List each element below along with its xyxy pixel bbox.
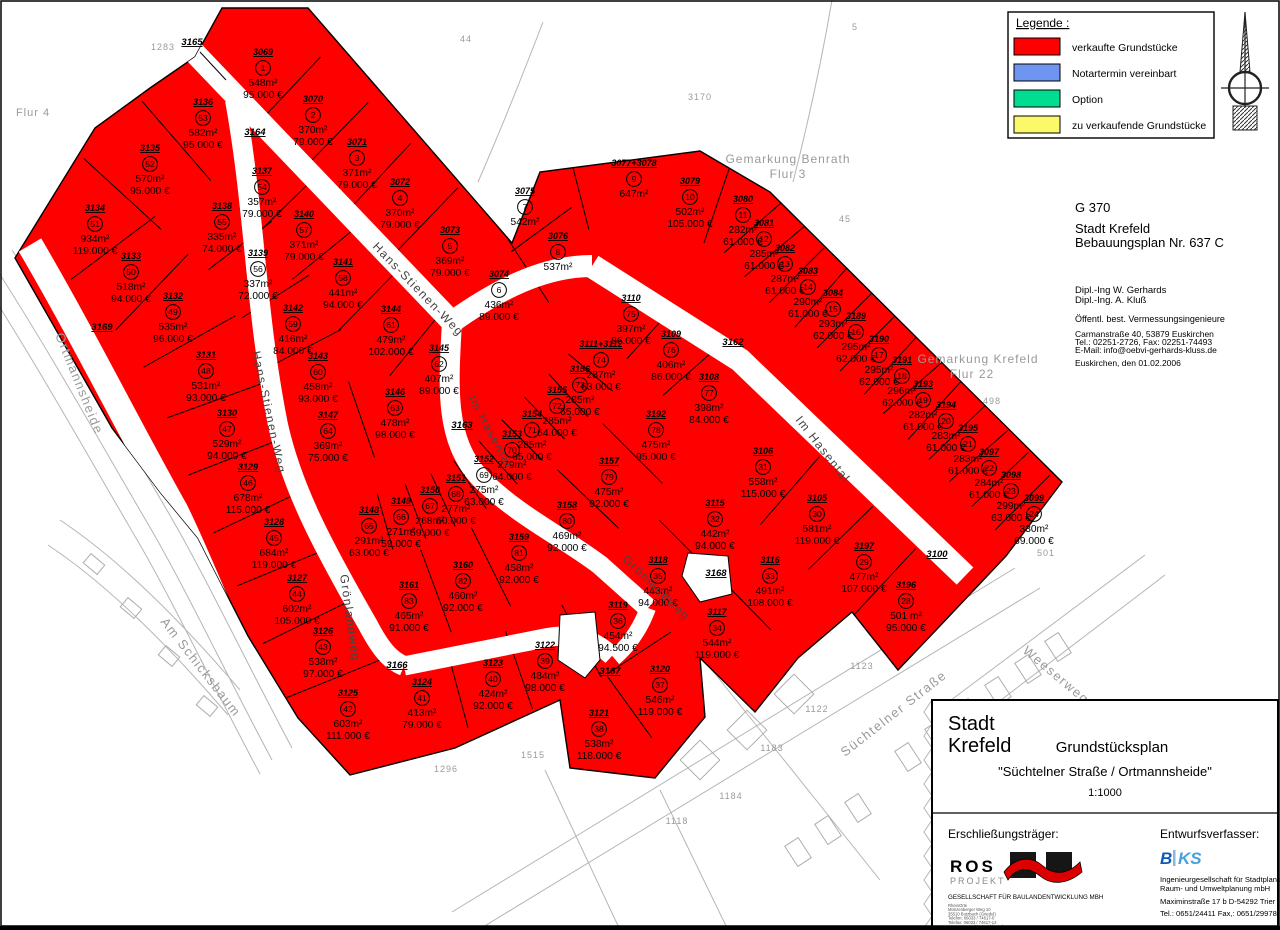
parcel-flurstueck: 3137 <box>252 166 273 176</box>
parcel-number: 18 <box>897 371 907 381</box>
parcel-area: 275m² <box>470 485 499 496</box>
parcel-price: 91.000 € <box>389 623 429 634</box>
parcel-number: 75 <box>626 309 636 319</box>
parcel-area: 398m² <box>695 403 724 414</box>
parcel-flurstueck: 3189 <box>846 311 866 321</box>
parcel-area: 283m² <box>932 431 961 442</box>
ros-logo-text: ROS <box>950 857 996 876</box>
parcel-price: 93.000 € <box>186 393 226 404</box>
parcel-flurstueck: 3126 <box>313 626 334 636</box>
parcel-price: 86.000 € <box>651 372 691 383</box>
parcel-price: 118.000 € <box>577 751 622 762</box>
parcel-flurstueck: 3149 <box>391 496 411 506</box>
parcel-flurstueck: 3135 <box>140 143 161 153</box>
parcel-area: 531m² <box>192 381 221 392</box>
parcel-area: 491m² <box>756 586 785 597</box>
parcel-number: 63 <box>390 403 400 413</box>
parcel-flurstueck: 3139 <box>248 248 268 258</box>
parcel-flurstueck: 3130 <box>217 408 237 418</box>
parcel-area: 529m² <box>213 439 242 450</box>
parcel-price: 95.000 € <box>130 186 170 197</box>
parcel-number: 2 <box>311 110 316 120</box>
parcel-number: 39 <box>540 656 550 666</box>
parcel-price: 64.000 € <box>492 472 532 483</box>
parcel-price: 98.000 € <box>525 683 565 694</box>
parcel-area: 413m² <box>408 708 437 719</box>
parcel-area: 282m² <box>909 410 938 421</box>
parcel-flurstueck: 3106 <box>753 446 774 456</box>
parcel-area: 295m² <box>865 365 894 376</box>
parcel-price: 72.000 € <box>238 291 278 302</box>
parcel-flurstueck: 3193 <box>913 379 933 389</box>
parcel-number: 54 <box>257 182 267 192</box>
parcel-flurstueck: 3195 <box>958 423 979 433</box>
parcel-price: 95.000 € <box>183 140 223 151</box>
parcel-number: 6 <box>497 285 502 295</box>
parcel-area: 371m² <box>290 240 319 251</box>
parcel-price: 86.000 € <box>611 336 651 347</box>
parcel-number: 67 <box>425 501 435 511</box>
plan-number: Bebauungsplan Nr. 637 C <box>1075 235 1224 250</box>
parcel-number: 83 <box>404 596 414 606</box>
parcel-flurstueck: 3076 <box>548 231 569 241</box>
parcel-price: 95.000 € <box>886 623 926 634</box>
parcel-area: 436m² <box>485 300 514 311</box>
parcel-price: 94.000 € <box>323 300 363 311</box>
parcel-area: 684m² <box>260 548 289 559</box>
parcel-number: 31 <box>758 462 768 472</box>
bks-logo-b: B <box>1160 849 1172 868</box>
parcel-flurstueck: 3160 <box>453 560 473 570</box>
tb-title: Grundstücksplan <box>1056 739 1169 756</box>
parcel-area: 582m² <box>189 128 218 139</box>
parcel-flurstueck: 3136 <box>193 97 214 107</box>
parcel-flurstueck: 3197 <box>854 541 875 551</box>
parcel-price: 63.000 € <box>991 513 1031 524</box>
context-parcel-label: 44 <box>460 34 472 44</box>
street-parcel-number: 3169 <box>91 322 113 333</box>
north-arrow-icon <box>1221 12 1269 130</box>
plan-canvas: 30691548m²95.000 €30702370m²79.000 €3071… <box>0 0 1280 930</box>
parcel-price: 74.000 € <box>202 244 242 255</box>
parcel-price: 115.000 € <box>741 489 786 500</box>
parcel-flurstueck: 3121 <box>589 708 609 718</box>
parcel-number: 5 <box>448 241 453 251</box>
context-parcel-label: 1118 <box>666 816 689 826</box>
parcel-number: 32 <box>710 514 720 524</box>
parcel-price: 63.000 € <box>581 382 621 393</box>
context-parcel-label: 1122 <box>805 704 828 714</box>
parcel-area: 479m² <box>377 335 406 346</box>
street-parcel-number: 3167 <box>599 666 621 677</box>
parcel-flurstueck: 3075 <box>515 186 536 196</box>
parcel-area: 478m² <box>381 418 410 429</box>
parcel-area: 477m² <box>850 572 879 583</box>
parcel-area: 546m² <box>646 695 675 706</box>
parcel-price: 69.000 € <box>1014 536 1054 547</box>
parcel-number: 81 <box>514 548 524 558</box>
parcel-area: 475m² <box>642 440 671 451</box>
parcel-price: 92.000 € <box>547 543 587 554</box>
parcel-number: 58 <box>338 273 348 283</box>
parcel-price: 105.000 € <box>667 219 713 230</box>
parcel-flurstueck: 3115 <box>705 498 725 508</box>
parcel-area: 465m² <box>395 611 424 622</box>
parcel-number: 65 <box>364 521 374 531</box>
parcel-flurstueck: 3082 <box>775 243 795 253</box>
tb-city-1: Stadt <box>948 713 995 735</box>
parcel-number: 13 <box>780 259 790 269</box>
parcel-flurstueck: 3196 <box>896 580 917 590</box>
plan-city: Stadt Krefeld <box>1075 221 1150 236</box>
parcel-number: 11 <box>739 210 748 220</box>
parcel-flurstueck: 3158 <box>557 500 577 510</box>
context-parcel-label: 1183 <box>760 743 783 753</box>
legend-item-label: verkaufte Grundstücke <box>1072 42 1178 54</box>
parcel-flurstueck: 3134 <box>85 203 105 213</box>
parcel-number: 14 <box>803 282 813 292</box>
parcel-number: 28 <box>901 596 911 606</box>
parcel-flurstueck: 3081 <box>754 218 774 228</box>
parcel-flurstueck: 3097 <box>979 447 1000 457</box>
street-parcel-number: 3165 <box>181 37 203 48</box>
parcel-number: 68 <box>451 489 461 499</box>
plan-info: G 370 Stadt Krefeld Bebauungsplan Nr. 63… <box>1075 200 1225 368</box>
parcel-area: 397m² <box>617 324 646 335</box>
plan-date: Euskirchen, den 01.02.2006 <box>1075 358 1181 368</box>
context-parcel-label: 498 <box>983 396 1001 406</box>
context-parcel-label: 1123 <box>850 661 873 671</box>
parcel-flurstueck: 3118 <box>648 555 667 565</box>
parcel-flurstueck: 3072 <box>390 177 410 187</box>
parcel-number: 78 <box>651 425 661 435</box>
parcel-area: 424m² <box>479 689 508 700</box>
parcel-price: 92.000 € <box>443 603 483 614</box>
parcel-flurstueck: 3144 <box>381 304 401 314</box>
parcel-number: 71 <box>527 425 537 435</box>
parcel-number: 12 <box>759 234 769 244</box>
parcel-area: 284m² <box>975 478 1004 489</box>
context-parcel-label: Gemarkung Benrath <box>725 152 850 166</box>
parcel-number: 38 <box>594 724 604 734</box>
parcel-price: 63.000 € <box>464 497 504 508</box>
parcel-area: 535m² <box>159 322 188 333</box>
parcel-area: 475m² <box>595 487 624 498</box>
parcel-price: 97.000 € <box>303 669 343 680</box>
parcel-price: 75.000 € <box>308 453 348 464</box>
parcel-number: 74 <box>596 355 606 365</box>
parcel-number: 52 <box>145 159 155 169</box>
parcel-price: 89.000 € <box>479 312 519 323</box>
parcel-flurstueck: 3148 <box>359 505 379 515</box>
context-parcel-label: 3170 <box>688 92 712 102</box>
parcel-number: 22 <box>984 463 994 473</box>
parcel-number: 48 <box>201 366 211 376</box>
parcel-flurstueck: 3161 <box>399 580 419 590</box>
parcel-price: 119.000 € <box>638 707 683 718</box>
parcel-flurstueck: 3146 <box>385 387 406 397</box>
parcel-area: 501 m² <box>890 611 922 622</box>
parcel-area: 416m² <box>279 334 308 345</box>
parcel-number: 56 <box>253 264 263 274</box>
parcel-number: 40 <box>488 674 498 684</box>
parcel-flurstueck: 3145 <box>429 343 450 353</box>
parcel-area: 460m² <box>449 591 478 602</box>
parcel-price: 108.000 € <box>747 598 793 609</box>
parcel-flurstueck: 3133 <box>121 251 141 261</box>
parcel-flurstueck: 3108 <box>699 372 719 382</box>
context-parcel-label: 1296 <box>434 764 458 774</box>
parcel-area: 538m² <box>309 657 338 668</box>
parcel-price: 79.000 € <box>380 220 420 231</box>
author-label: Entwurfsverfasser: <box>1160 827 1259 841</box>
parcel-price: 92.000 € <box>499 575 539 586</box>
parcel-flurstueck: 3141 <box>333 257 353 267</box>
parcel-flurstueck: 3116 <box>760 555 780 565</box>
parcel-flurstueck: 3129 <box>238 462 258 472</box>
parcel-price: 94.000 € <box>111 294 151 305</box>
parcel-flurstueck: 3077+3078 <box>611 158 656 168</box>
parcel-price: 84.000 € <box>689 415 729 426</box>
parcel-price: 94.500 € <box>598 643 638 654</box>
parcel-area: 369m² <box>314 441 343 452</box>
parcel-number: 43 <box>318 642 328 652</box>
parcel-area: 458m² <box>505 563 534 574</box>
parcel-number: 45 <box>269 533 279 543</box>
parcel-price: 93.000 € <box>298 394 338 405</box>
parcel-flurstueck: 3124 <box>412 677 432 687</box>
parcel-number: 53 <box>198 113 208 123</box>
parcel-price: 115.000 € <box>226 505 271 516</box>
developer-label: Erschließungsträger: <box>948 827 1059 841</box>
parcel-flurstueck: 3070 <box>303 94 323 104</box>
parcel-number: 77 <box>704 388 714 398</box>
bks-logo-icon: B KS <box>1160 849 1202 868</box>
ros-logo-sub: PROJEKT <box>950 876 1006 886</box>
legend: Legende : verkaufte GrundstückeNotarterm… <box>1008 12 1214 138</box>
parcel-flurstueck: 3138 <box>212 201 232 211</box>
parcel-number: 66 <box>396 512 406 522</box>
parcel-flurstueck: 3084 <box>823 288 843 298</box>
parcel-price: 65.000 € <box>512 452 552 463</box>
parcel-price: 107.000 € <box>841 584 887 595</box>
parcel-number: 69 <box>479 470 489 480</box>
parcel-flurstueck: 3190 <box>869 334 889 344</box>
parcel-price: 119.000 € <box>252 560 297 571</box>
parcel-number: 64 <box>323 426 333 436</box>
parcel-price: 61.000 € <box>765 286 805 297</box>
parcel-price: 94.000 € <box>695 541 735 552</box>
street-parcel-number: 3100 <box>926 549 948 560</box>
parcel-area: 330m² <box>1020 524 1049 535</box>
parcel-flurstueck: 3150 <box>420 485 440 495</box>
context-parcel-label: Flur 22 <box>950 367 994 381</box>
parcel-price: 92.000 € <box>473 701 513 712</box>
parcel-number: 80 <box>562 516 572 526</box>
parcel-flurstueck: 3110 <box>621 293 640 303</box>
parcel-flurstueck: 3191 <box>892 355 912 365</box>
parcel-area: 558m² <box>749 477 778 488</box>
parcel-price: 96.000 € <box>153 334 193 345</box>
parcel-area: 570m² <box>136 174 165 185</box>
parcel-number: 62 <box>434 359 444 369</box>
parcel-number: 37 <box>655 680 665 690</box>
parcel-area: 602m² <box>283 604 312 615</box>
parcel-number: 42 <box>343 704 353 714</box>
parcel-price: 65.000 € <box>560 407 600 418</box>
office-line: Öffentl. best. Vermessungsingenieure <box>1075 314 1225 324</box>
context-parcel-label: 1283 <box>151 42 175 52</box>
parcel-flurstueck: 3143 <box>308 351 328 361</box>
title-block: Stadt Krefeld Grundstücksplan "Süchtelne… <box>924 700 1280 930</box>
context-parcel-label: 501 <box>1037 548 1055 558</box>
engineer-2: Dipl.-Ing. A. Kluß <box>1075 295 1146 306</box>
parcel-area: 370m² <box>386 208 415 219</box>
parcel-price: 105.000 € <box>274 616 320 627</box>
parcel-flurstueck: 3083 <box>798 266 818 276</box>
parcel-price: 119.000 € <box>695 650 740 661</box>
context-parcel-label: 1184 <box>719 791 742 801</box>
parcel-number: 4 <box>398 193 403 203</box>
parcel-number: 10 <box>685 192 695 202</box>
parcel-area: 290m² <box>794 297 823 308</box>
parcel-flurstueck: 3117 <box>707 607 727 617</box>
parcel-number: 16 <box>851 327 861 337</box>
parcel-number: 46 <box>243 478 253 488</box>
parcel-area: 484m² <box>531 671 560 682</box>
parcel-area: 934m² <box>81 234 110 245</box>
parcel-number: 3 <box>355 153 360 163</box>
legend-swatch <box>1014 64 1060 81</box>
parcel-price: 59.000 € <box>381 539 421 550</box>
parcel-flurstueck: 3073 <box>440 225 460 235</box>
context-parcel-label: 45 <box>839 214 851 224</box>
parcel-flurstueck: 3132 <box>163 291 183 301</box>
parcel-number: 20 <box>941 416 951 426</box>
bottom-border <box>0 926 1280 930</box>
parcel-area: 287m² <box>771 274 800 285</box>
plan-code: G 370 <box>1075 200 1110 215</box>
parcel-price: 79.000 € <box>430 268 470 279</box>
legend-swatch <box>1014 116 1060 133</box>
parcel-area: 285m² <box>566 395 595 406</box>
parcel-price: 102.000 € <box>368 347 414 358</box>
tb-subtitle: "Süchtelner Straße / Ortmannsheide" <box>998 764 1212 779</box>
context-parcel-label: Gemarkung Krefeld <box>917 352 1038 366</box>
parcel-number: 61 <box>386 320 396 330</box>
parcel-price: 94.000 € <box>207 451 247 462</box>
parcel-flurstueck: 3152 <box>474 454 494 464</box>
parcel-area: 357m² <box>248 197 277 208</box>
office-addr3: E-Mail: info@oebvi-gerhards-kluss.de <box>1075 345 1217 355</box>
parcel-number: 1 <box>261 63 266 73</box>
parcel-area: 371m² <box>343 168 372 179</box>
parcel-price: 62.000 € <box>813 331 853 342</box>
legend-item-label: Option <box>1072 94 1103 106</box>
parcel-flurstueck: 3159 <box>509 532 529 542</box>
parcel-flurstueck: 3098 <box>1001 470 1021 480</box>
parcel-area: 407m² <box>425 374 454 385</box>
parcel-area: 293m² <box>819 319 848 330</box>
parcel-number: 17 <box>874 350 884 360</box>
parcel-flurstueck: 3154 <box>522 409 542 419</box>
developer-sub: GESELLSCHAFT FÜR BAULANDENTWICKLUNG MBH <box>948 894 1103 901</box>
parcel-number: 57 <box>299 225 309 235</box>
parcel-price: 79.000 € <box>242 209 282 220</box>
parcel-area: 291m² <box>355 536 384 547</box>
parcel-flurstueck: 3155 <box>547 385 568 395</box>
parcel-number: 60 <box>313 367 323 377</box>
parcel-flurstueck: 3142 <box>283 303 303 313</box>
parcel-number: 33 <box>765 571 775 581</box>
parcel-number: 23 <box>1006 486 1016 496</box>
parcel-area: 295m² <box>842 342 871 353</box>
parcel-price: 59.000 € <box>410 528 450 539</box>
parcel-number: 76 <box>666 345 676 355</box>
parcel-number: 47 <box>222 424 232 434</box>
parcel-flurstueck: 3079 <box>680 176 700 186</box>
parcel-number: 41 <box>417 693 427 703</box>
context-parcel-label: Flur 4 <box>16 107 50 119</box>
parcel-area: 442m² <box>701 529 730 540</box>
parcel-flurstueck: 3157 <box>599 456 620 466</box>
parcel-flurstueck: 3099 <box>1024 493 1044 503</box>
parcel-price: 60.000 € <box>436 516 476 527</box>
parcel-price: 79.000 € <box>293 137 333 148</box>
parcel-number: 51 <box>90 219 100 229</box>
parcel-area: 581m² <box>803 524 832 535</box>
bks-logo-ks: KS <box>1178 849 1202 868</box>
legend-swatch <box>1014 38 1060 55</box>
parcel-area: 287m² <box>587 370 616 381</box>
parcel-flurstueck: 3194 <box>936 400 956 410</box>
parcel-area: 458m² <box>304 382 333 393</box>
parcel-price: 95.000 € <box>243 90 283 101</box>
parcel-flurstueck: 3125 <box>338 688 359 698</box>
parcel-flurstueck: 3153 <box>502 429 522 439</box>
parcel-area: 285m² <box>518 440 547 451</box>
parcel-area: 299m² <box>997 501 1026 512</box>
parcel-area: 406m² <box>657 360 686 371</box>
parcel-area: 548m² <box>249 78 278 89</box>
parcel-area: 537m² <box>544 262 573 273</box>
legend-swatch <box>1014 90 1060 107</box>
street-parcel-number: 3166 <box>386 660 408 671</box>
author-line-2: Raum- und Umweltplanung mbH <box>1160 884 1270 893</box>
author-line-3: Maximinstraße 17 b D-54292 Trier <box>1160 897 1276 906</box>
parcel-price: 64.000 € <box>537 428 577 439</box>
parcel-flurstueck: 3080 <box>733 194 753 204</box>
parcel-number: 21 <box>963 439 973 449</box>
context-parcel-label: 5 <box>852 22 858 32</box>
parcel-flurstueck: 3131 <box>196 350 216 360</box>
site-plan-map: 30691548m²95.000 €30702370m²79.000 €3071… <box>0 0 1280 930</box>
parcel-price: 79.000 € <box>402 720 442 731</box>
parcel-price: 62.000 € <box>836 354 876 365</box>
street-parcel-number: 3164 <box>244 127 266 138</box>
parcel-area: 538m² <box>585 739 614 750</box>
parcel-area: 335m² <box>208 232 237 243</box>
parcel-flurstueck: 3074 <box>489 269 509 279</box>
parcel-flurstueck: 3109 <box>661 329 681 339</box>
parcel-number: 36 <box>613 616 623 626</box>
parcel-flurstueck: 3127 <box>287 573 308 583</box>
parcel-area: 678m² <box>234 493 263 504</box>
parcel-number: 55 <box>217 217 227 227</box>
parcel-flurstueck: 3147 <box>318 410 339 420</box>
parcel-flurstueck: 3123 <box>483 658 503 668</box>
parcel-price: 119.000 € <box>795 536 840 547</box>
